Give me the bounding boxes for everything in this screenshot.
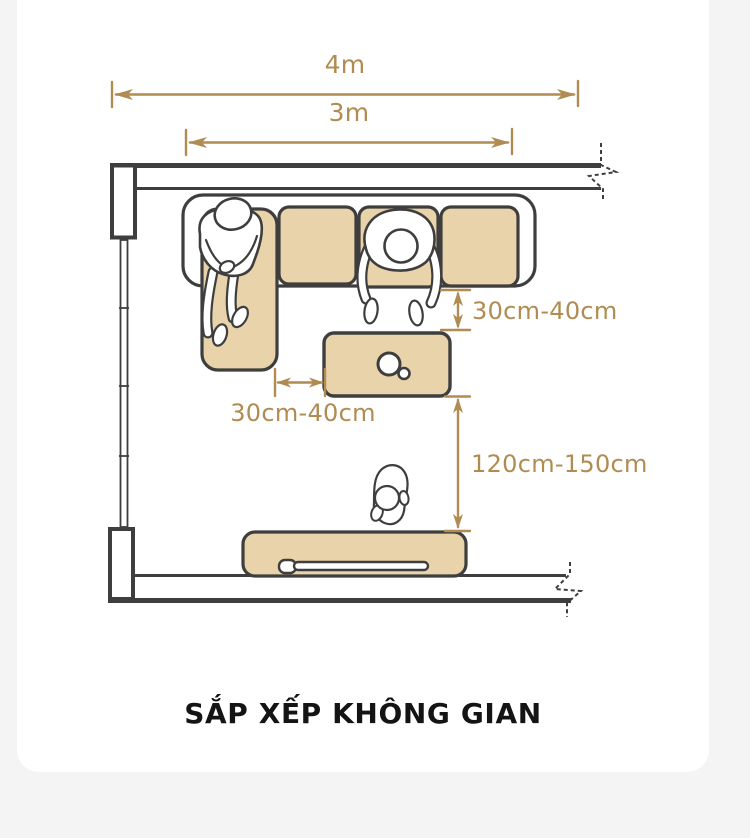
- window-icon: [119, 240, 129, 527]
- dimension-label: 3m: [329, 98, 370, 127]
- coffee-table-icon: [324, 333, 450, 396]
- dimension-label: 30cm-40cm: [230, 399, 376, 427]
- seat-cushion-icon: [279, 207, 356, 284]
- dimension-table-to-tv: 120cm-150cm: [445, 397, 648, 532]
- dimension-sofa-width: 3m: [186, 98, 512, 155]
- tv-icon: [294, 562, 428, 570]
- dimension-label: 120cm-150cm: [471, 450, 648, 478]
- page: 4m 3m 30cm-40cm 30cm-40cm: [0, 0, 750, 838]
- floor-plan-diagram: 4m 3m 30cm-40cm 30cm-40cm: [0, 0, 750, 660]
- wall-corner-top-left: [112, 166, 135, 238]
- dimension-label: 30cm-40cm: [472, 297, 618, 325]
- cup-icon: [378, 353, 400, 375]
- tv-stand-icon: [243, 532, 466, 576]
- wall-break-icon: [555, 562, 581, 617]
- dimension-sofa-to-table: 30cm-40cm: [441, 290, 618, 330]
- shoe-icon: [407, 300, 424, 327]
- wall-corner-bottom-left: [110, 529, 133, 599]
- cup-icon: [399, 368, 410, 379]
- head: [385, 230, 418, 263]
- person-by-tv-icon: [369, 465, 410, 524]
- dimension-label: 4m: [325, 50, 366, 79]
- head: [375, 486, 399, 510]
- wall-break-icon: [589, 143, 616, 201]
- page-title: SẮP XẾP KHÔNG GIAN: [17, 697, 709, 730]
- seat-cushion-icon: [441, 207, 518, 286]
